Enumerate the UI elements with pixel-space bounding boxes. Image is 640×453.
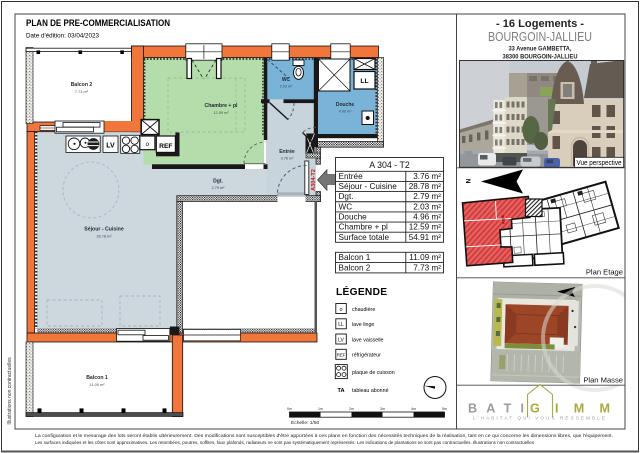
svg-text:7.73 m²: 7.73 m²: [75, 89, 89, 94]
svg-text:38300 BOURGOIN-JALLIEU: 38300 BOURGOIN-JALLIEU: [503, 54, 578, 61]
svg-text:Séjour - Cuisine: Séjour - Cuisine: [339, 182, 398, 191]
svg-text:Surface totale: Surface totale: [339, 233, 390, 242]
svg-text:1m: 1m: [318, 407, 323, 411]
svg-text:REF: REF: [159, 143, 172, 150]
svg-text:Date d'édition: 03/04/2023: Date d'édition: 03/04/2023: [26, 33, 99, 40]
svg-text:12.59 m²: 12.59 m²: [213, 110, 229, 115]
svg-text:54.91 m²: 54.91 m²: [409, 233, 442, 242]
svg-text:LÉGENDE: LÉGENDE: [336, 285, 387, 298]
svg-text:4m: 4m: [411, 407, 416, 411]
svg-text:2.79 m²: 2.79 m²: [413, 192, 441, 201]
svg-text:28.78 m²: 28.78 m²: [409, 182, 442, 191]
svg-text:12.59 m²: 12.59 m²: [409, 223, 442, 232]
svg-text:Balcon 2: Balcon 2: [339, 263, 371, 272]
svg-text:LL: LL: [338, 322, 344, 328]
svg-text:Plan Etage: Plan Etage: [586, 268, 623, 277]
svg-text:Balcon 1: Balcon 1: [339, 253, 371, 262]
svg-text:A 304 - T2: A 304 - T2: [369, 160, 410, 170]
svg-text:plaque de cuisson: plaque de cuisson: [352, 370, 395, 376]
svg-text:Douche: Douche: [339, 213, 368, 222]
svg-text:Entrée: Entrée: [339, 172, 364, 181]
svg-text:réfrigérateur: réfrigérateur: [352, 353, 381, 359]
svg-text:LL: LL: [360, 78, 368, 85]
svg-text:A304: A304: [501, 214, 506, 224]
svg-text:BOURGOIN-JALLIEU: BOURGOIN-JALLIEU: [488, 30, 592, 44]
svg-text:Chambre + pl: Chambre + pl: [204, 103, 238, 109]
svg-text:28.78 m²: 28.78 m²: [96, 234, 112, 239]
svg-text:Entrée: Entrée: [279, 149, 295, 155]
svg-text:0m: 0m: [287, 407, 292, 411]
svg-text:2.79 m²: 2.79 m²: [212, 186, 226, 190]
svg-text:LV: LV: [106, 142, 115, 149]
svg-text:La configuration et le mesurag: La configuration et le mesurage des lots…: [35, 433, 613, 439]
svg-text:lave linge: lave linge: [352, 322, 374, 328]
svg-text:2m: 2m: [349, 407, 354, 411]
svg-text:Les surfaces indiquées et les: Les surfaces indiquées et les côtes sont…: [35, 440, 535, 446]
svg-text:7.73 m²: 7.73 m²: [413, 263, 441, 272]
svg-text:Plan Masse: Plan Masse: [583, 375, 623, 384]
svg-text:33 Avenue GAMBETTA,: 33 Avenue GAMBETTA,: [509, 46, 572, 53]
svg-text:4.96 m²: 4.96 m²: [339, 110, 353, 114]
svg-text:Séjour - Cuisine: Séjour - Cuisine: [84, 227, 124, 233]
svg-text:3m: 3m: [380, 407, 385, 411]
svg-text:Chambre + pl: Chambre + pl: [339, 223, 389, 232]
svg-text:PLAN DE PRE-COMMERCIALISATION: PLAN DE PRE-COMMERCIALISATION: [26, 18, 170, 29]
svg-text:Illustrations non contractuell: Illustrations non contractuelles: [7, 357, 13, 425]
svg-text:Dgt.: Dgt.: [213, 179, 223, 185]
svg-text:3.76 m²: 3.76 m²: [413, 172, 441, 181]
svg-text:WC: WC: [339, 202, 353, 211]
svg-text:11.09 m²: 11.09 m²: [409, 253, 441, 262]
svg-text:Balcon 1: Balcon 1: [86, 375, 108, 381]
svg-text:L'HABITAT QUI VOUS RESSEMBLE: L'HABITAT QUI VOUS RESSEMBLE: [473, 415, 607, 420]
svg-text:REF: REF: [337, 353, 346, 358]
svg-text:Douche: Douche: [336, 102, 355, 108]
svg-text:11.09 m²: 11.09 m²: [89, 382, 105, 387]
svg-text:2.03 m²: 2.03 m²: [280, 85, 294, 89]
svg-text:tableau abonné: tableau abonné: [352, 388, 389, 394]
svg-text:N: N: [466, 178, 473, 183]
svg-text:Dgt.: Dgt.: [339, 192, 354, 201]
svg-text:- 16 Logements -: - 16 Logements -: [496, 18, 584, 30]
svg-text:4.96 m²: 4.96 m²: [413, 213, 441, 222]
svg-text:WC: WC: [282, 77, 291, 83]
svg-text:o: o: [339, 307, 342, 313]
svg-text:5m: 5m: [442, 407, 447, 411]
svg-text:Echelle: 1/50: Echelle: 1/50: [291, 420, 320, 426]
svg-text:TA: TA: [338, 388, 345, 394]
svg-text:Balcon 2: Balcon 2: [71, 82, 93, 88]
svg-text:2.03 m²: 2.03 m²: [413, 202, 441, 211]
svg-text:chaudière: chaudière: [352, 307, 375, 313]
svg-text:LV: LV: [338, 337, 344, 343]
svg-text:lave vaisselle: lave vaisselle: [352, 337, 384, 343]
svg-text:Vue perspective: Vue perspective: [577, 160, 622, 167]
svg-text:3.76 m²: 3.76 m²: [281, 157, 295, 161]
svg-text:A304-T2: A304-T2: [311, 169, 317, 191]
